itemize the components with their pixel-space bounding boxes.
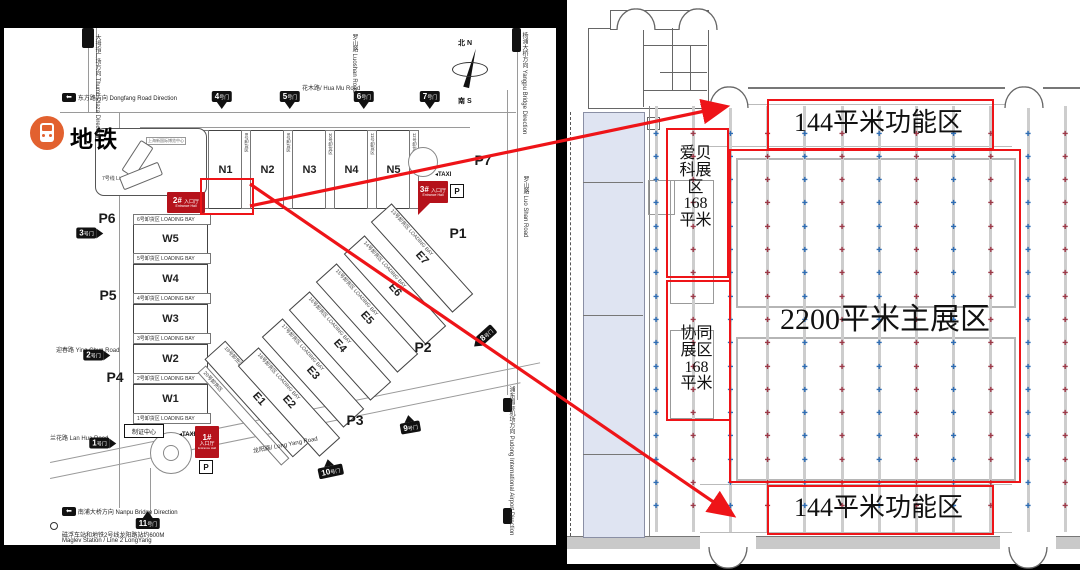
column-marker: ✚: [1062, 433, 1069, 440]
gate-label: 4号门: [212, 91, 232, 102]
column-marker: ✚: [653, 177, 660, 184]
gate-4号门: 4号门: [212, 91, 232, 109]
parking-P6: P6: [98, 210, 115, 226]
gate-arrow-icon: [110, 438, 117, 448]
gate-arrow-icon: [217, 102, 227, 109]
metro-note-icon: [50, 522, 58, 530]
column-marker: ✚: [653, 224, 660, 231]
road-label: 罗山路 Luoshan Road: [350, 34, 359, 93]
gate-6号门: 6号门: [354, 91, 374, 109]
column-marker: ✚: [653, 364, 660, 371]
road-label: 杨浦大桥方向 Yangpu Bridge Direction: [520, 32, 529, 134]
road-label: 浦东国际机场方向 Pudong International Airport Di…: [507, 386, 516, 535]
loading-bay-9号卸货区: 9号卸货区: [283, 130, 293, 209]
column-marker: ✚: [653, 131, 660, 138]
gate-9号门: 9号门: [398, 413, 421, 434]
parking-P4: P4: [106, 369, 123, 385]
column-marker: ✚: [1025, 480, 1032, 487]
entrance-hall-1#: 1#入口厅Entrance Hall: [195, 426, 219, 458]
column-marker: ✚: [1025, 154, 1032, 161]
road-label: 大拇指广场方向 Thumb Plaza Direction: [93, 34, 102, 138]
boundary-dashed: [570, 112, 571, 536]
badge-center: 制证中心: [124, 424, 164, 438]
loading-bay-3号卸货区: 3号卸货区 LOADING BAY: [133, 333, 211, 344]
hall-N4: N4: [334, 130, 369, 209]
room-wall: [660, 72, 707, 73]
hall-N2: N2: [250, 130, 285, 209]
zone-abk-label: 爱贝科展区168平米: [666, 146, 725, 230]
column-marker: ✚: [1025, 317, 1032, 324]
column-marker: ✚: [1062, 503, 1069, 510]
door-gap: [700, 536, 756, 549]
column-marker: ✚: [690, 433, 697, 440]
parking-P2: P2: [414, 339, 431, 355]
hall-wall-left: [649, 106, 650, 536]
gate-arrow-icon: [359, 102, 369, 109]
maglev-note-en: Maglev Station / Line 2 LongYang: [62, 538, 152, 544]
loading-bay-11号卸货区: 11号卸货区: [367, 130, 377, 209]
loading-bay-label: 10号卸货区: [327, 133, 333, 155]
column-marker: ✚: [1062, 340, 1069, 347]
gate-label: 5号门: [280, 91, 300, 102]
venue-callout-label: 上海新国际博览中心: [146, 137, 186, 145]
column-marker: ✚: [653, 433, 660, 440]
road-line: [517, 28, 518, 400]
column-marker: ✚: [1025, 364, 1032, 371]
left-arrow-icon: ⬅: [62, 507, 76, 516]
parking-P5: P5: [99, 287, 116, 303]
left-arrow-icon: ⬅: [62, 93, 76, 102]
column-marker: ✚: [1025, 340, 1032, 347]
gate-1号门: 1号门: [89, 438, 116, 449]
column-marker: ✚: [1025, 294, 1032, 301]
column-marker: ✚: [1062, 224, 1069, 231]
compass-ellipse: [452, 62, 488, 77]
train-icon: [40, 123, 54, 142]
column-marker: ✚: [1025, 433, 1032, 440]
zone-main-label: 2200平米主展区: [750, 300, 1020, 340]
gate-label: 7号门: [420, 91, 440, 102]
column-marker: ✚: [653, 200, 660, 207]
gate-5号门: 5号门: [280, 91, 300, 109]
column-marker: ✚: [653, 247, 660, 254]
column-marker: ✚: [653, 410, 660, 417]
column-marker: ✚: [690, 480, 697, 487]
gate-arrow-icon: [285, 102, 295, 109]
gate-label: 3号门: [76, 228, 96, 239]
direction-badge-dongfang: ⬅ 东方路方向 Dongfang Road Direction: [62, 93, 177, 102]
compass-north-label: 北 N: [458, 38, 472, 48]
room-wall: [643, 45, 707, 46]
corridor-divider: [583, 315, 643, 316]
room-wall: [690, 45, 691, 90]
parking-P3: P3: [346, 412, 363, 428]
loading-bay-label: 9号卸货区: [285, 133, 291, 152]
column-marker: ✚: [1062, 317, 1069, 324]
gate-label: 2号门: [83, 350, 103, 361]
hall-W5: W5: [133, 224, 208, 254]
venue-map-scene: 地铁 上海新国际博览中心 7号线 Line 7 磁浮车站和地铁2号线龙阳路站约6…: [0, 0, 1080, 564]
column-marker: ✚: [653, 387, 660, 394]
column-marker: ✚: [1062, 154, 1069, 161]
column-marker: ✚: [1025, 131, 1032, 138]
parking-P7: P7: [474, 152, 491, 168]
loading-bay-10号卸货区: 10号卸货区: [325, 130, 335, 209]
highlight-box: [200, 178, 254, 215]
zone-top-label: 144平米功能区: [767, 99, 990, 146]
gate-label: 6号门: [354, 91, 374, 102]
column-marker: ✚: [690, 457, 697, 464]
taxi-label: ◂TAXI: [179, 431, 195, 438]
corridor-divider: [583, 182, 643, 183]
gate-arrow-icon: [143, 511, 153, 518]
parking-icon: P: [450, 184, 464, 198]
corridor-divider: [583, 454, 643, 455]
column-marker: ✚: [653, 457, 660, 464]
loading-bay-5号卸货区: 5号卸货区 LOADING BAY: [133, 253, 211, 264]
gate-2号门: 2号门: [83, 350, 110, 361]
column-marker: ✚: [653, 340, 660, 347]
column-marker: ✚: [1025, 247, 1032, 254]
parking-P1: P1: [449, 225, 466, 241]
column-marker: ✚: [1062, 364, 1069, 371]
entrance-hall-3#: 3# 入口厅Entrance Hall: [418, 181, 448, 203]
hall-W2: W2: [133, 344, 208, 374]
loading-bay-label: 8号卸货区: [243, 133, 249, 152]
column-marker: ✚: [1062, 177, 1069, 184]
hall-N5: N5: [376, 130, 411, 209]
column-marker: ✚: [1062, 247, 1069, 254]
gate-arrow-icon: [425, 102, 435, 109]
compass-south-label: 南 S: [458, 96, 472, 106]
room-wall: [643, 28, 644, 107]
column-marker: ✚: [1062, 270, 1069, 277]
column-marker: ✚: [1062, 200, 1069, 207]
column-marker: ✚: [1025, 387, 1032, 394]
column-marker: ✚: [1062, 131, 1069, 138]
column-marker: ✚: [690, 503, 697, 510]
road-label: 罗山路 Luo Shan Road: [521, 176, 530, 237]
gate-7号门: 7号门: [420, 91, 440, 109]
column-marker: ✚: [653, 503, 660, 510]
column-marker: ✚: [1062, 387, 1069, 394]
roundabout: [163, 445, 179, 461]
loading-bay-6号卸货区: 6号卸货区 LOADING BAY: [133, 214, 211, 225]
column-marker: ✚: [1062, 294, 1069, 301]
room-wall: [643, 90, 707, 91]
door-gap: [1000, 536, 1056, 549]
hall-N3: N3: [292, 130, 327, 209]
gate-3号门: 3号门: [76, 228, 103, 239]
column-marker: ✚: [1025, 270, 1032, 277]
column-marker: ✚: [1025, 177, 1032, 184]
column-marker: ✚: [1062, 410, 1069, 417]
column-marker: ✚: [1062, 457, 1069, 464]
rooms-outline: [610, 10, 709, 30]
hall-wall-top: [748, 87, 1005, 89]
gate-11号门: 11号门: [136, 511, 160, 529]
column-marker: ✚: [653, 317, 660, 324]
hall-W4: W4: [133, 264, 208, 294]
zone-bottom-label: 144平米功能区: [767, 485, 990, 531]
hall-wall-top: [1043, 87, 1080, 89]
column-marker: ✚: [1025, 457, 1032, 464]
column-marker: ✚: [1025, 503, 1032, 510]
taxi-label: ◂TAXI: [435, 171, 451, 178]
room-wall: [672, 28, 673, 90]
loading-bay-1号卸货区: 1号卸货区 LOADING BAY: [133, 413, 211, 424]
column-marker: ✚: [653, 480, 660, 487]
gate-arrow-icon: [97, 228, 104, 238]
gate-arrow-icon: [104, 350, 111, 360]
road-line: [60, 112, 516, 113]
column-marker: ✚: [727, 503, 734, 510]
entrance-label: 3# 入口厅Entrance Hall: [420, 186, 446, 198]
zone-xt-label: 协同展区168平米: [666, 326, 727, 393]
column-marker: ✚: [1062, 480, 1069, 487]
parking-icon: P: [199, 460, 213, 474]
hall-W1: W1: [133, 384, 208, 414]
entrance-label: 1#入口厅Entrance Hall: [198, 434, 216, 450]
gate-label: 1号门: [89, 438, 109, 449]
roundabout: [408, 147, 438, 177]
column-marker: ✚: [1025, 410, 1032, 417]
loading-bay-4号卸货区: 4号卸货区 LOADING BAY: [133, 293, 211, 304]
gate-label: 11号门: [136, 518, 160, 529]
metro-icon: [30, 116, 64, 150]
column-marker: ✚: [653, 294, 660, 301]
entrance-label: 2# 入口厅Entrance Hall: [173, 197, 199, 209]
column-marker: ✚: [1025, 200, 1032, 207]
road-line: [507, 90, 508, 395]
loading-bay-label: 11号卸货区: [369, 133, 375, 154]
column-marker: ✚: [1025, 224, 1032, 231]
hall-W3: W3: [133, 304, 208, 334]
column-marker: ✚: [653, 270, 660, 277]
column-marker: ✚: [653, 154, 660, 161]
corridor-strip: [583, 112, 645, 538]
entrance-tail: [418, 202, 431, 215]
